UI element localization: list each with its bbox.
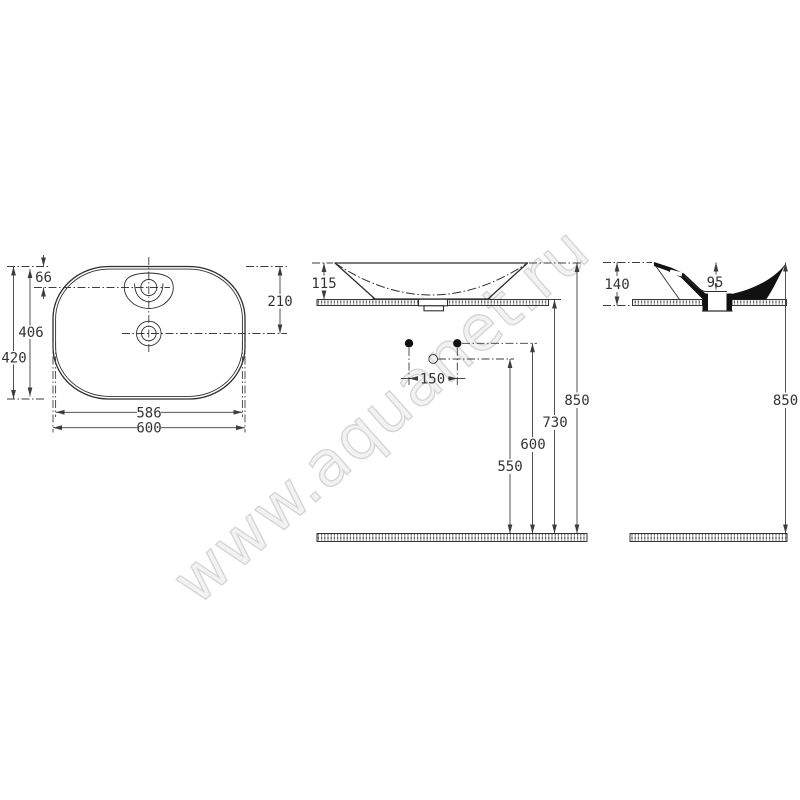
dim-label-850-side: 850 xyxy=(773,393,798,409)
dim-overall-height: 140 xyxy=(604,263,629,306)
dim-faucet-offset: 66 xyxy=(35,255,52,299)
section-left-wall xyxy=(654,262,708,299)
dim-label-850-front: 850 xyxy=(564,393,589,409)
countertop-right xyxy=(732,300,787,306)
dim-label-550: 550 xyxy=(497,459,522,475)
dim-counter-height: 730 xyxy=(542,300,567,534)
floor-line-side xyxy=(630,534,787,542)
drain-fitting xyxy=(419,299,448,306)
dim-inner-width: 586 xyxy=(56,405,243,421)
dim-holes-height: 600 xyxy=(520,343,545,533)
dim-label-66: 66 xyxy=(35,270,52,286)
drain-fitting-lower xyxy=(424,306,444,311)
fixing-hole-left xyxy=(405,339,413,347)
watermark-text: www.aquanet.ru xyxy=(159,213,604,618)
dim-rim-height-front: 850 xyxy=(564,263,589,534)
dim-label-600-front: 600 xyxy=(520,437,545,453)
dim-label-95: 95 xyxy=(707,275,724,291)
section-right-wall xyxy=(730,263,787,300)
drain-wall-left xyxy=(703,294,709,312)
dim-label-730: 730 xyxy=(542,415,567,431)
side-view: 140 95 850 xyxy=(603,262,798,542)
drain-wall-right xyxy=(727,294,733,312)
dim-label-586: 586 xyxy=(136,405,161,421)
washbasin-dimension-drawing: www.aquanet.ru 420 406 xyxy=(0,0,800,800)
dim-outer-width: 600 xyxy=(53,421,245,437)
dim-drain-offset: 210 xyxy=(267,267,292,334)
dim-basin-height: 115 xyxy=(311,263,336,300)
dim-label-140: 140 xyxy=(604,277,629,293)
dim-label-420: 420 xyxy=(1,351,26,367)
countertop-left xyxy=(633,300,703,306)
dim-label-600-top: 600 xyxy=(136,421,161,437)
dim-label-115: 115 xyxy=(311,276,336,292)
top-view: 420 406 66 210 586 600 xyxy=(1,255,292,437)
dim-label-406: 406 xyxy=(18,325,43,341)
dim-inlet-height: 550 xyxy=(497,359,522,534)
technical-drawing-canvas: www.aquanet.ru 420 406 xyxy=(0,0,800,800)
dim-label-210: 210 xyxy=(267,294,292,310)
floor-line-front xyxy=(317,534,587,542)
dim-inner-depth: 95 xyxy=(707,263,724,292)
dim-label-150: 150 xyxy=(420,372,445,388)
fixing-hole-right xyxy=(453,339,461,347)
dim-inner-length: 406 xyxy=(18,269,43,396)
